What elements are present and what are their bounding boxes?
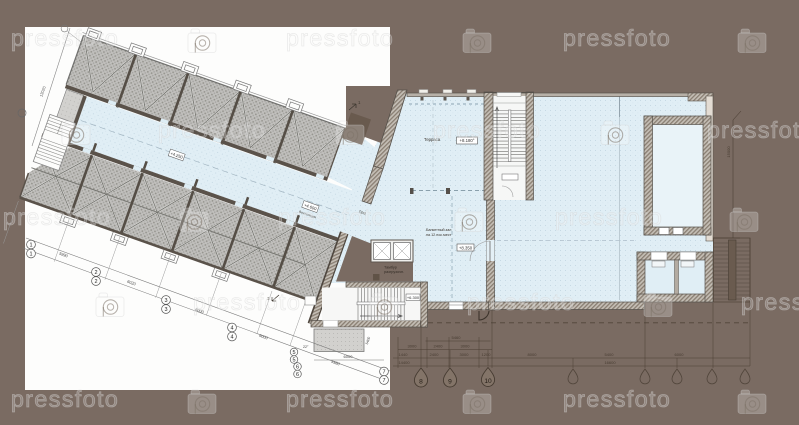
svg-text:pressfoto: pressfoto [707,117,799,143]
svg-text:22°: 22° [303,345,309,349]
svg-text:pressfoto: pressfoto [278,204,386,230]
svg-text:pressfoto: pressfoto [158,117,266,143]
svg-text:5: 5 [292,350,295,356]
svg-text:pressfoto: pressfoto [563,386,671,412]
svg-text:2: 2 [94,270,97,276]
svg-text:pressfoto: pressfoto [467,289,575,315]
svg-text:16600: 16600 [604,360,616,365]
svg-text:2: 2 [94,279,97,285]
svg-text:6000: 6000 [675,352,685,357]
svg-text:7: 7 [382,370,385,376]
svg-text:Банкетный зал: Банкетный зал [426,228,451,232]
svg-text:2400: 2400 [430,352,440,357]
svg-text:6000: 6000 [344,354,354,359]
svg-text:3000: 3000 [408,344,418,349]
svg-text:pressfoto: pressfoto [193,289,301,315]
svg-text:14400: 14400 [398,360,410,365]
svg-text:5400: 5400 [605,352,615,357]
svg-text:15000: 15000 [726,146,731,158]
svg-text:4: 4 [230,335,233,341]
svg-text:10: 10 [484,378,492,385]
svg-text:3000: 3000 [460,352,470,357]
svg-text:pressfoto: pressfoto [563,25,671,51]
svg-text:8000: 8000 [528,352,538,357]
svg-text:pressfoto: pressfoto [11,25,119,51]
svg-text:1: 1 [29,243,32,249]
svg-text:3000: 3000 [461,344,471,349]
svg-text:+6.300: +6.300 [407,295,420,300]
svg-text:5460: 5460 [452,335,462,340]
svg-text:2400: 2400 [434,344,444,349]
svg-text:pressfoto: pressfoto [741,289,799,315]
svg-text:4: 4 [230,326,233,332]
svg-text:Тамбур: Тамбур [384,266,397,270]
svg-text:3: 3 [164,307,167,313]
svg-text:3: 3 [164,298,167,304]
svg-text:1200: 1200 [482,352,492,357]
svg-text:pressfoto: pressfoto [433,117,541,143]
svg-text:8: 8 [419,379,423,386]
svg-text:на 12 пос.мест: на 12 пос.мест [426,233,452,237]
svg-text:pressfoto: pressfoto [286,386,394,412]
svg-text:7: 7 [382,378,385,384]
svg-text:6: 6 [296,372,299,378]
svg-text:6: 6 [296,365,299,371]
svg-text:+8.350: +8.350 [459,245,473,250]
svg-text:pressfoto: pressfoto [286,25,394,51]
svg-text:разгрузочн.: разгрузочн. [384,270,404,274]
svg-text:1: 1 [29,252,32,258]
svg-text:pressfoto: pressfoto [11,386,119,412]
svg-text:1440: 1440 [399,352,409,357]
svg-text:9: 9 [448,379,452,386]
svg-text:5: 5 [292,358,295,364]
svg-text:pressfoto: pressfoto [3,204,111,230]
svg-text:pressfoto: pressfoto [555,204,663,230]
